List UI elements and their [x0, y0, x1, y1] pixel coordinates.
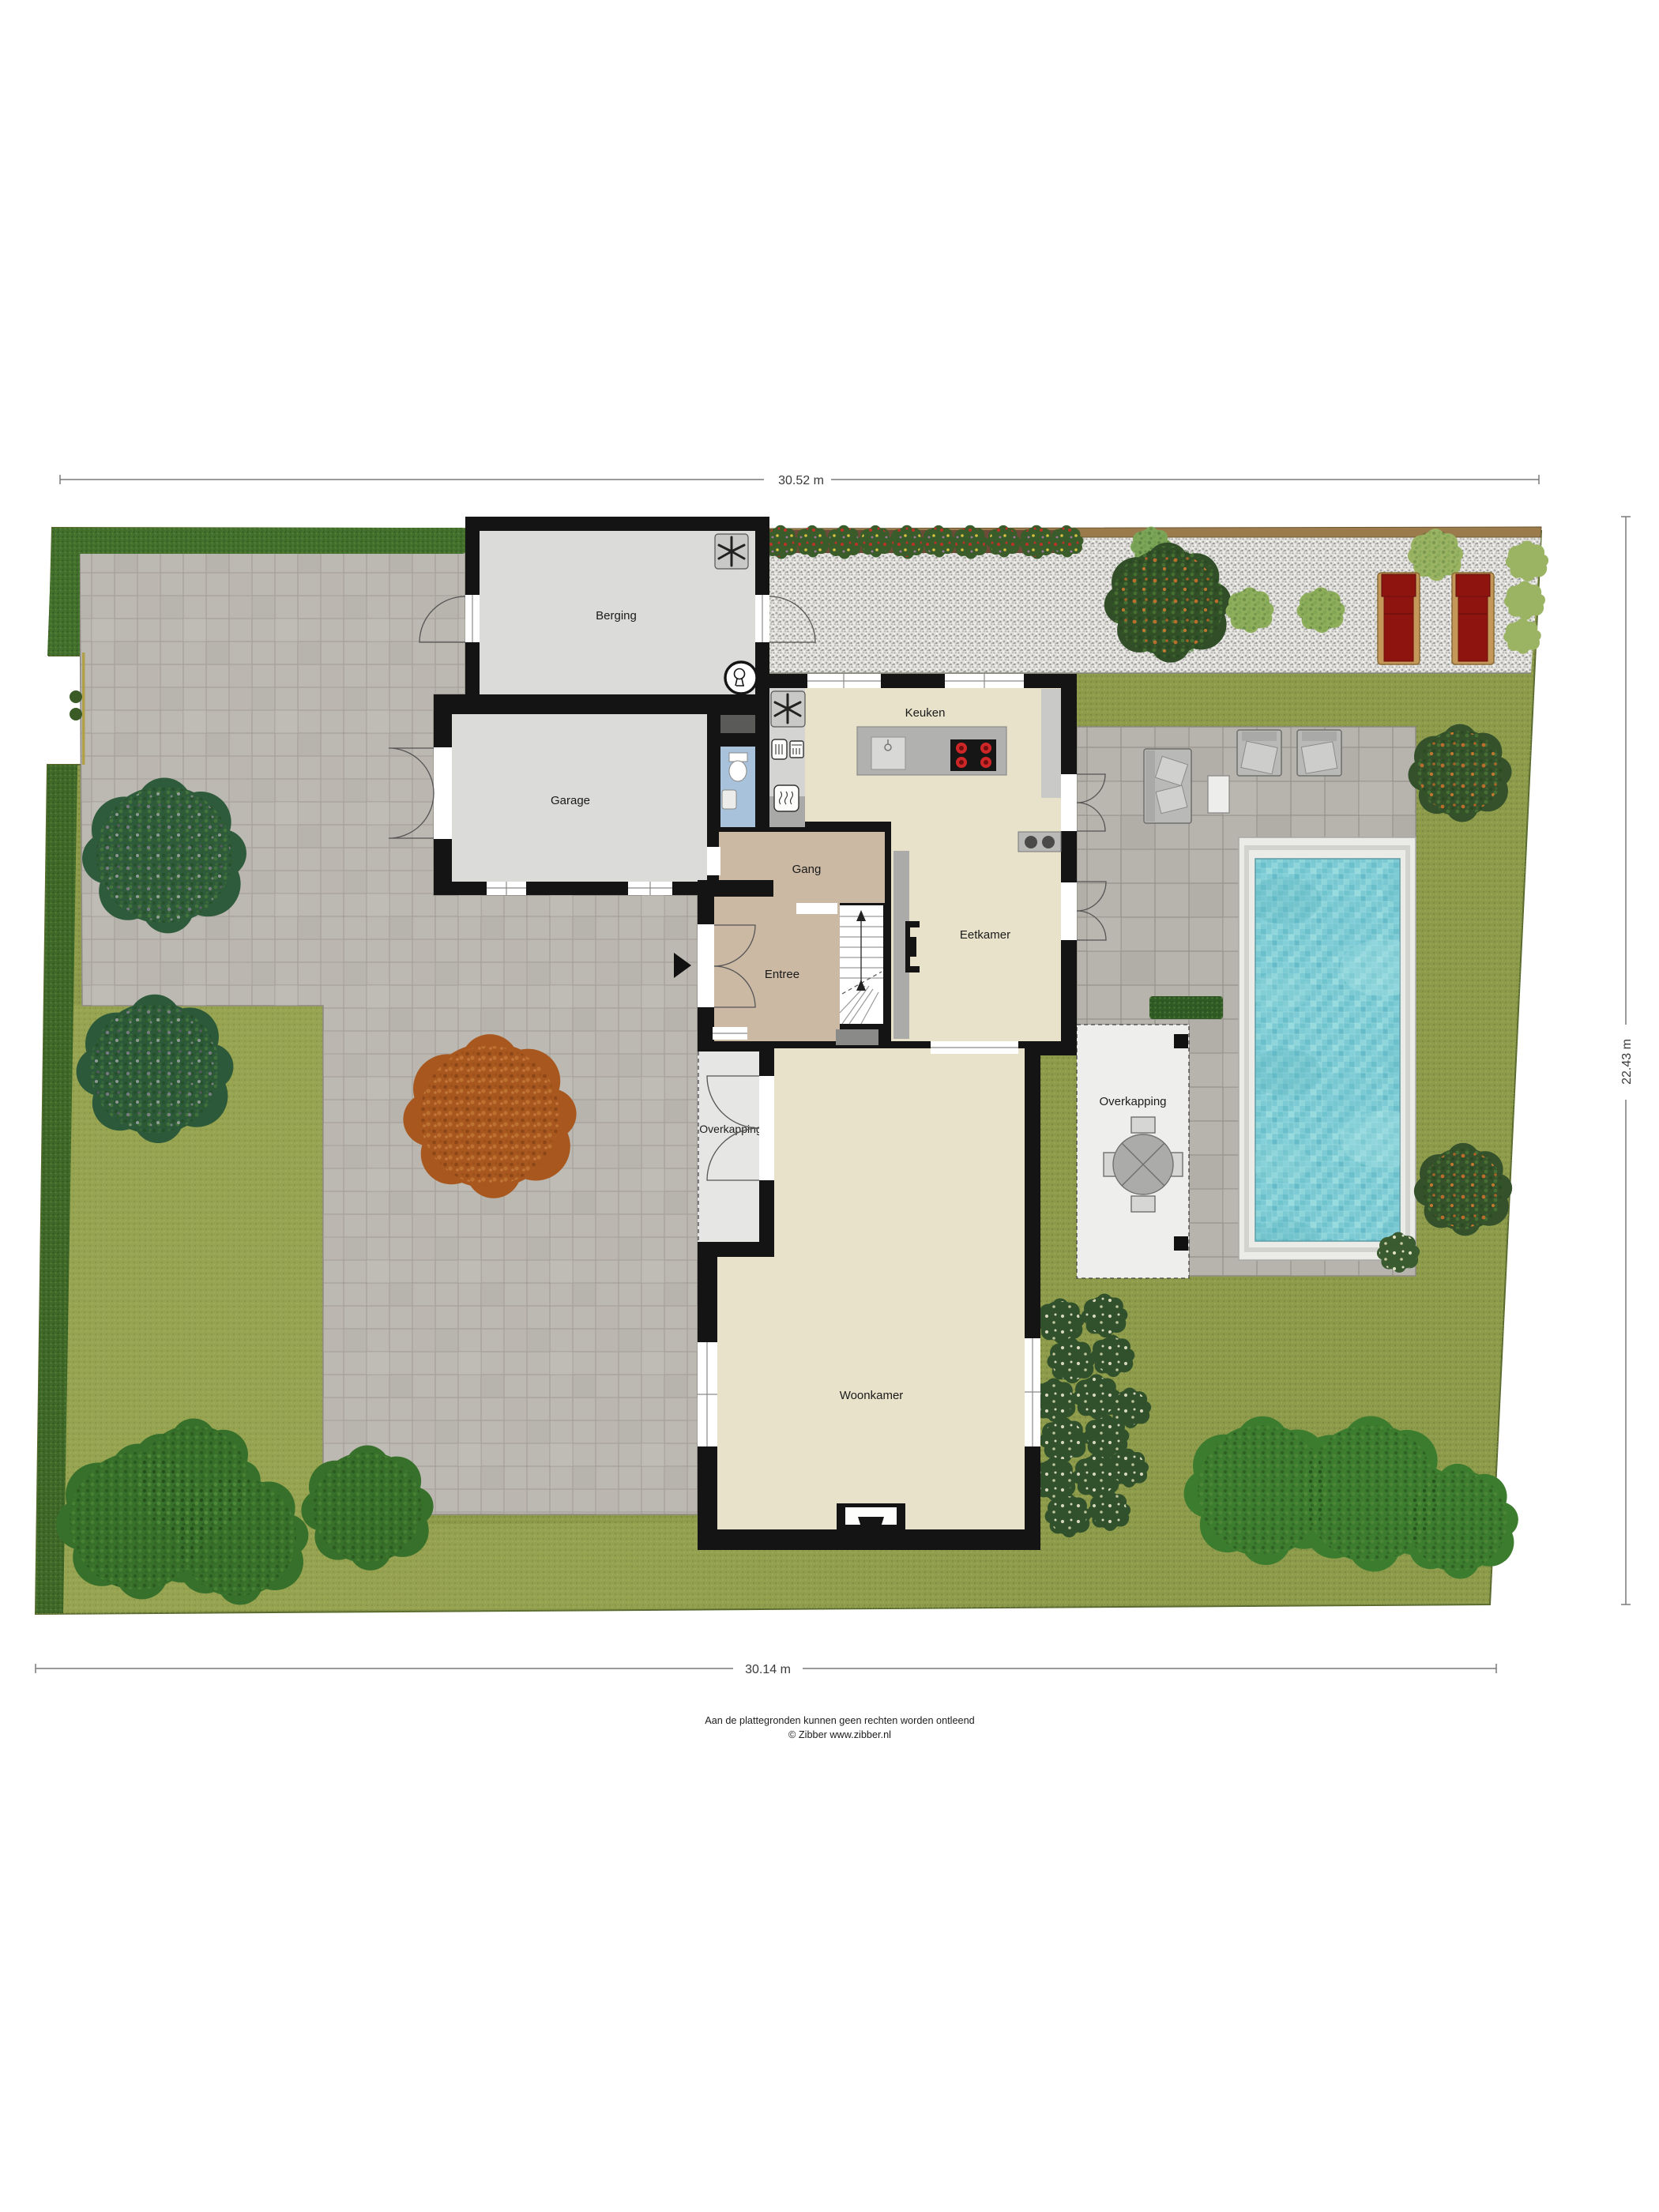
svg-text:30.52 m: 30.52 m	[778, 474, 824, 487]
svg-text:Woonkamer: Woonkamer	[840, 1389, 904, 1402]
svg-text:Overkapping: Overkapping	[1099, 1095, 1166, 1108]
svg-text:22.43 m: 22.43 m	[1620, 1039, 1634, 1085]
svg-text:Entree: Entree	[765, 968, 799, 981]
svg-text:Berging: Berging	[596, 609, 637, 623]
svg-text:30.14 m: 30.14 m	[745, 1663, 791, 1676]
svg-text:Keuken: Keuken	[905, 706, 946, 720]
svg-text:Gang: Gang	[792, 863, 822, 876]
svg-text:Aan de plattegronden kunnen ge: Aan de plattegronden kunnen geen rechten…	[705, 1715, 974, 1726]
svg-text:Garage: Garage	[551, 794, 590, 807]
svg-text:Eetkamer: Eetkamer	[960, 928, 1010, 942]
svg-text:© Zibber www.zibber.nl: © Zibber www.zibber.nl	[788, 1729, 891, 1740]
